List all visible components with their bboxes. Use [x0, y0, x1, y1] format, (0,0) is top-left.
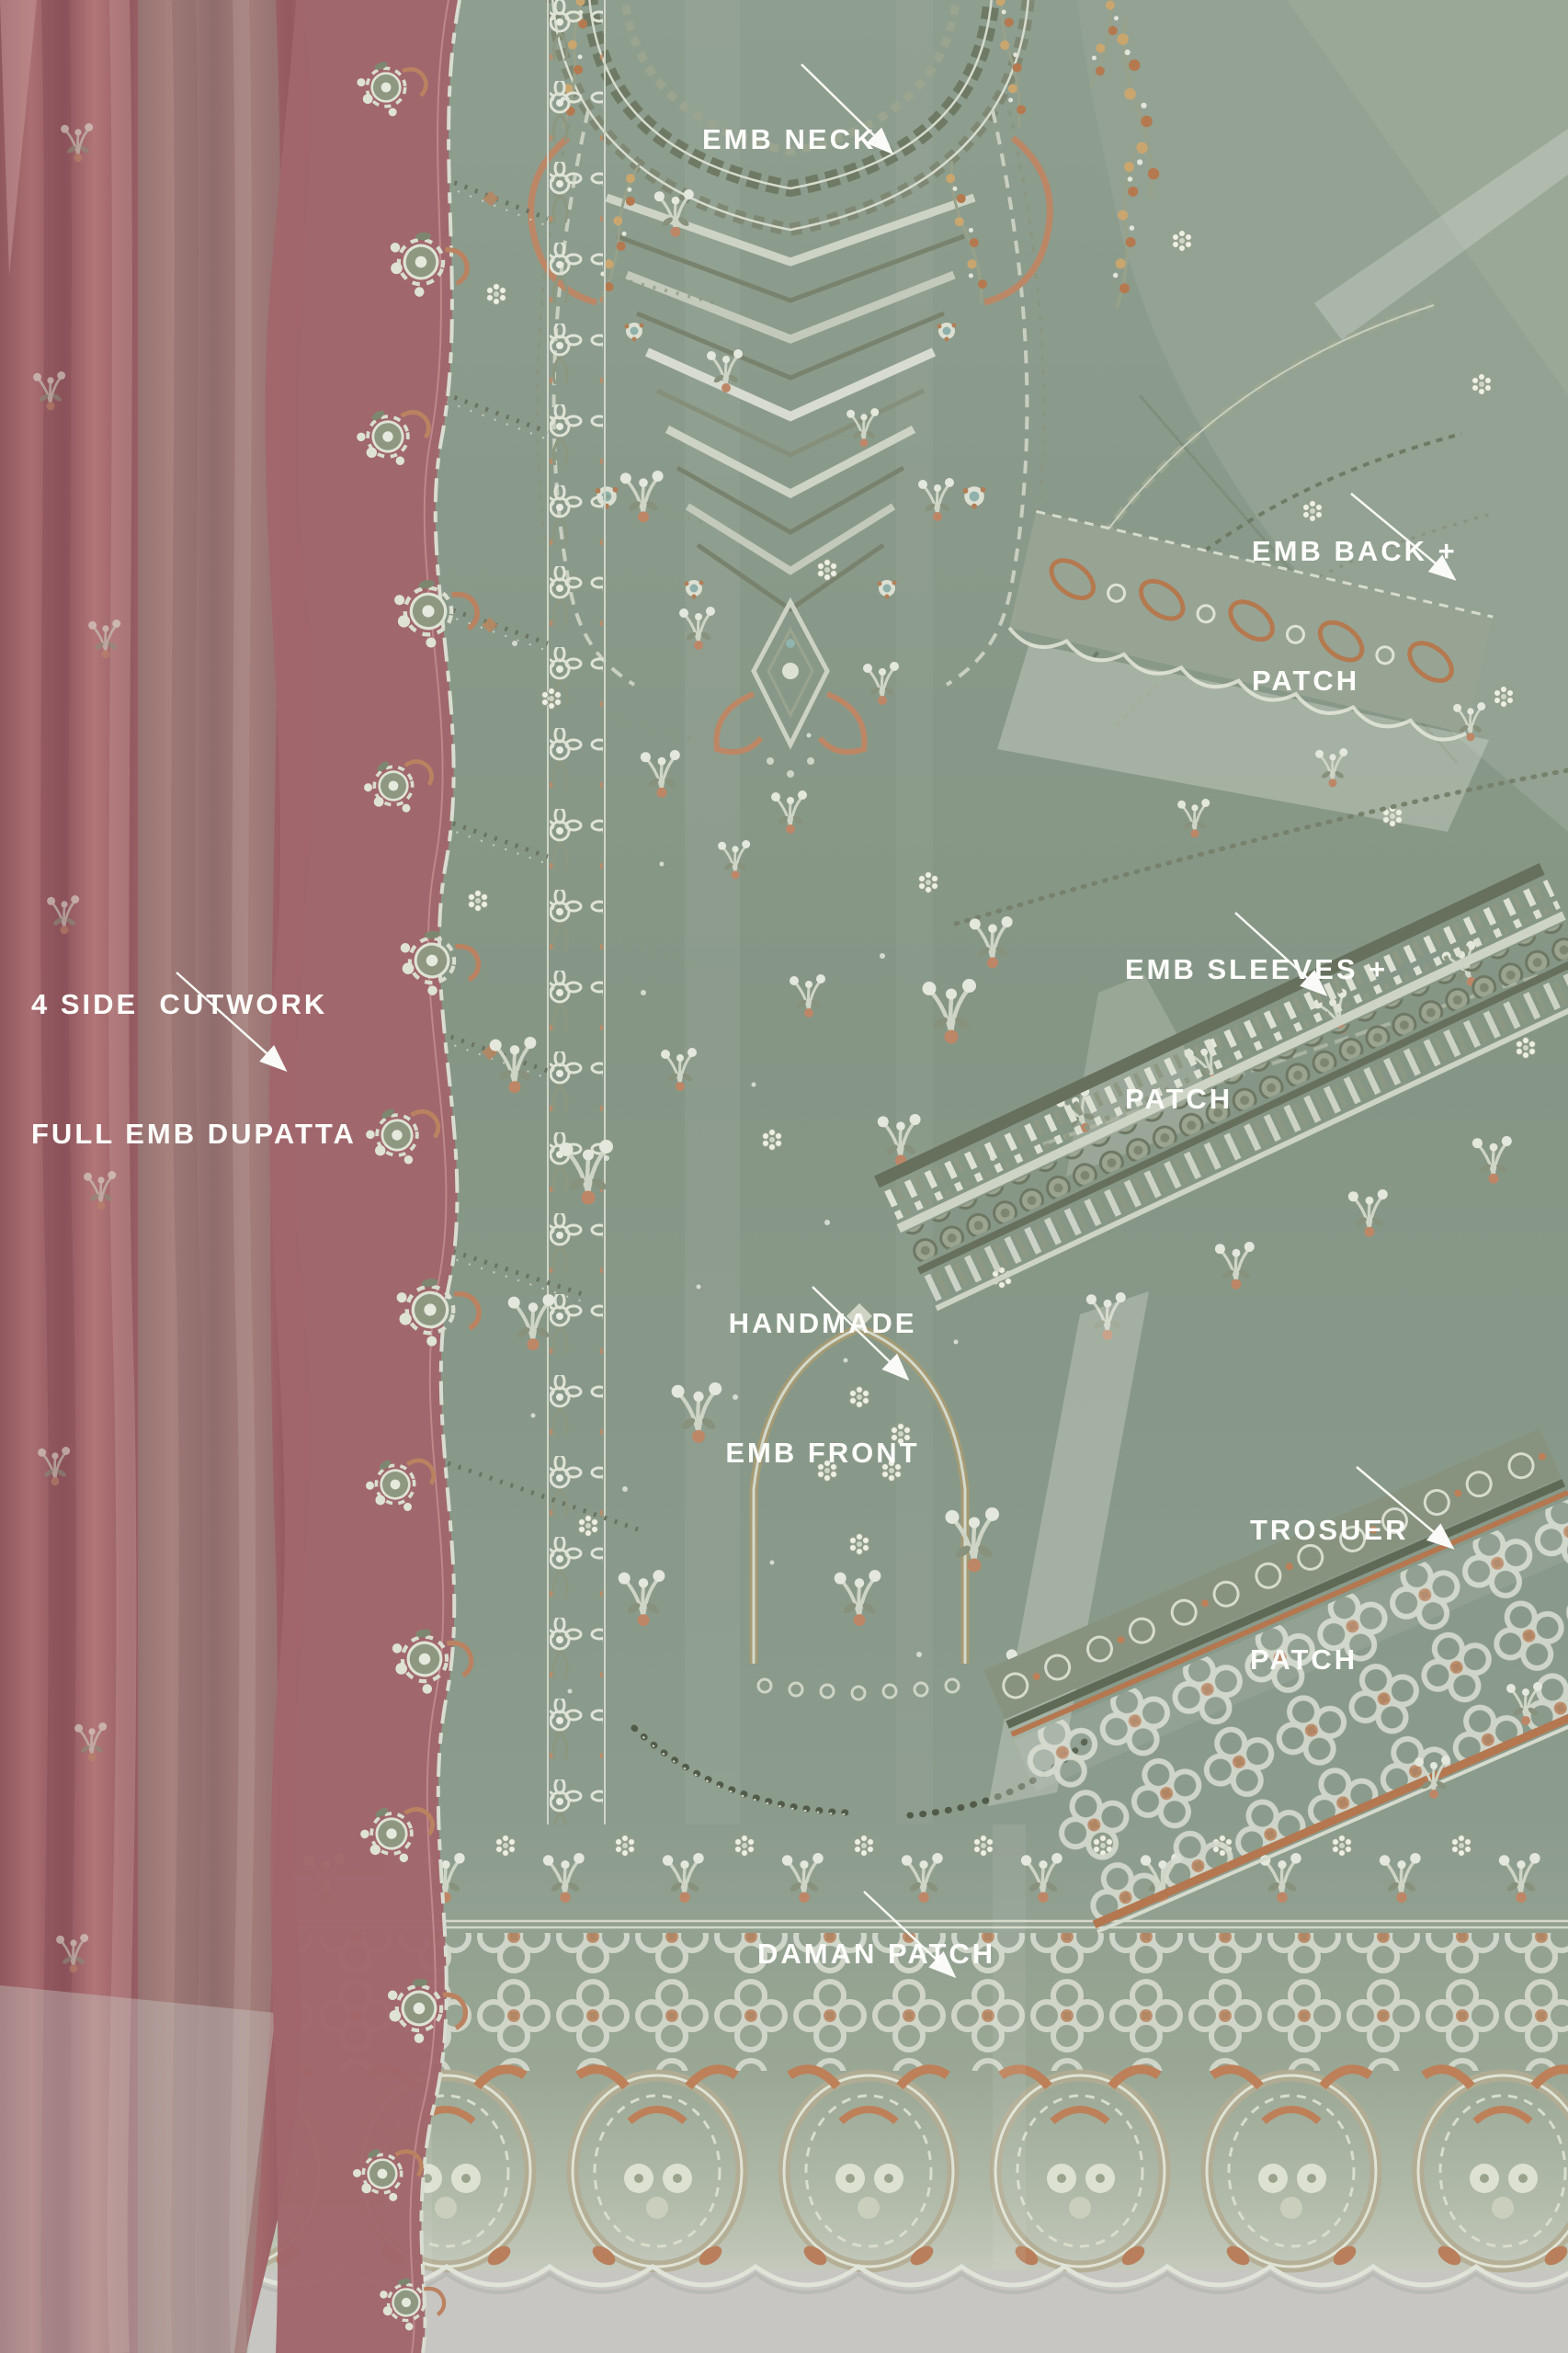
label-text: EMB BACK +	[1252, 529, 1458, 573]
label-text: 4 SIDE CUTWORK	[31, 983, 357, 1026]
label-text: TROSUER	[1250, 1508, 1409, 1552]
label-text: PATCH	[1252, 659, 1458, 702]
label-handmade-emb-front: HANDMADE EMB FRONT	[671, 1215, 974, 1561]
label-text: PATCH	[1125, 1077, 1388, 1120]
label-daman-patch: DAMAN PATCH	[757, 1846, 995, 2062]
label-text: EMB SLEEVES +	[1125, 948, 1388, 991]
label-emb-sleeves-patch: EMB SLEEVES + PATCH	[1125, 861, 1388, 1207]
label-trouser-patch: TROSUER PATCH	[1250, 1422, 1409, 1768]
label-text: EMB NECK	[702, 118, 876, 161]
product-photo: EMB NECK EMB BACK + PATCH 4 SIDE CUTWORK…	[0, 0, 1568, 2353]
label-text: DAMAN PATCH	[757, 1932, 995, 1975]
label-text: PATCH	[1250, 1638, 1409, 1681]
label-emb-neck: EMB NECK	[702, 31, 876, 247]
label-text: EMB FRONT	[671, 1431, 974, 1474]
label-text: HANDMADE	[671, 1302, 974, 1345]
label-emb-back-patch: EMB BACK + PATCH	[1252, 443, 1458, 789]
label-cutwork-dupatta: 4 SIDE CUTWORK FULL EMB DUPATTA	[31, 896, 357, 1242]
label-text: FULL EMB DUPATTA	[31, 1112, 357, 1155]
